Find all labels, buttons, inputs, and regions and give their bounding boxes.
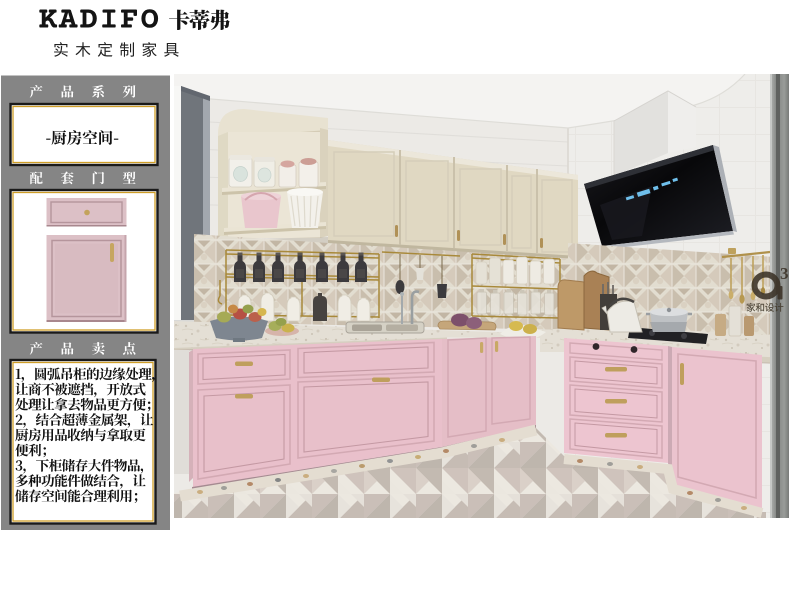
svg-text:3: 3 — [780, 264, 789, 283]
